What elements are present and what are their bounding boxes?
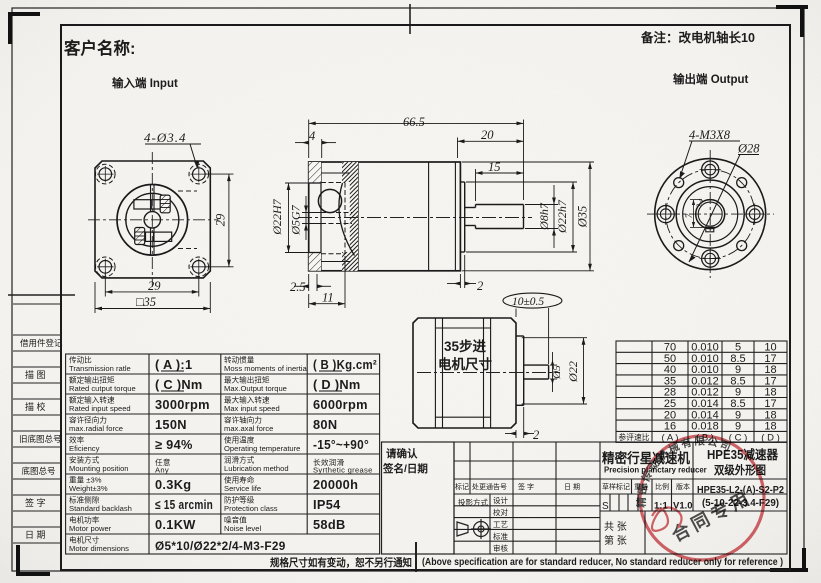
svg-text:润滑方式: 润滑方式 [224, 455, 255, 465]
svg-text:16: 16 [664, 421, 676, 433]
svg-text:Rated cutput torque: Rated cutput torque [69, 384, 136, 393]
svg-text:28: 28 [664, 387, 676, 399]
svg-text:20000h: 20000h [313, 477, 358, 492]
svg-text:Ø5: Ø5 [551, 365, 563, 380]
svg-text:旧底图总号: 旧底图总号 [19, 434, 62, 444]
svg-text:IP54: IP54 [313, 497, 341, 512]
svg-text:max.radial force: max.radial force [69, 424, 123, 433]
svg-text:8.5: 8.5 [730, 353, 745, 365]
svg-text:Eficiency: Eficiency [69, 444, 100, 453]
svg-text:Ø5*10/Ø22*2/4-M3-F29: Ø5*10/Ø22*2/4-M3-F29 [155, 539, 286, 553]
svg-text:比例: 比例 [655, 482, 669, 491]
svg-text:Max input speed: Max input speed [224, 404, 280, 413]
svg-text:0.012: 0.012 [691, 387, 719, 399]
svg-text:66.5: 66.5 [403, 115, 425, 129]
svg-text:电机尺寸: 电机尺寸 [69, 535, 100, 545]
svg-text:投影方式: 投影方式 [458, 497, 488, 507]
svg-text:Ø28: Ø28 [737, 142, 760, 156]
svg-text:描 图: 描 图 [25, 369, 46, 380]
svg-text:Syrthetic grease: Syrthetic grease [313, 466, 373, 475]
svg-text:传动比: 传动比 [69, 355, 92, 365]
svg-text:日 期: 日 期 [25, 530, 46, 540]
svg-text:客户名称:: 客户名称: [63, 38, 136, 58]
svg-text:0.3Kg: 0.3Kg [155, 477, 191, 492]
svg-text:防护等级: 防护等级 [224, 495, 255, 505]
svg-text:17: 17 [764, 353, 776, 365]
svg-text:20: 20 [664, 409, 676, 421]
svg-text:设计: 设计 [493, 495, 508, 505]
svg-text:9: 9 [735, 409, 741, 421]
svg-text:0.010: 0.010 [691, 353, 719, 365]
svg-text:25: 25 [664, 398, 676, 410]
svg-text:效率: 效率 [69, 435, 85, 445]
svg-text:参评速比: 参评速比 [618, 432, 649, 442]
svg-text:0.014: 0.014 [691, 398, 719, 410]
svg-text:额定输出扭矩: 额定输出扭矩 [69, 375, 115, 385]
svg-text:Lubrication method: Lubrication method [224, 464, 289, 473]
svg-text:请确认: 请确认 [386, 447, 418, 460]
svg-text:Moss moments of inertia: Moss moments of inertia [224, 364, 307, 373]
svg-text:18: 18 [764, 387, 776, 399]
svg-text:17: 17 [764, 375, 776, 387]
svg-text:9: 9 [735, 421, 741, 433]
svg-text:描 校: 描 校 [25, 401, 46, 412]
svg-text:4: 4 [309, 129, 315, 143]
svg-text:( B )Kg.cm²: ( B )Kg.cm² [313, 357, 377, 372]
svg-text:0.012: 0.012 [691, 375, 719, 387]
svg-text:Protection class: Protection class [224, 504, 278, 513]
svg-text:额定输入转速: 额定输入转速 [69, 395, 115, 405]
svg-text:工艺: 工艺 [493, 520, 508, 529]
svg-text:40: 40 [664, 364, 676, 376]
svg-text:底图总号: 底图总号 [22, 466, 56, 476]
svg-text:Mounting position: Mounting position [69, 464, 129, 473]
svg-text:20: 20 [481, 128, 494, 142]
svg-text:(Above specification are for s: (Above specification are for standard re… [422, 557, 783, 568]
svg-text:输出端 Output: 输出端 Output [673, 72, 749, 86]
svg-text:容许轴向力: 容许轴向力 [224, 415, 262, 425]
svg-text:日 期: 日 期 [564, 483, 580, 491]
svg-text:9: 9 [735, 387, 741, 399]
svg-text:≤ 15 arcmin: ≤ 15 arcmin [155, 497, 213, 512]
svg-text:Ø5G7: Ø5G7 [289, 204, 303, 235]
svg-text:Transmission ratle: Transmission ratle [69, 364, 131, 373]
svg-text:Motor power: Motor power [69, 524, 112, 533]
svg-text:校对: 校对 [493, 507, 508, 517]
svg-text:借用件登记: 借用件登记 [20, 338, 63, 348]
svg-text:输入端 Input: 输入端 Input [112, 76, 178, 90]
svg-text:35步进: 35步进 [444, 338, 487, 354]
svg-text:18: 18 [764, 421, 776, 433]
svg-text:Operating temperature: Operating temperature [224, 444, 300, 453]
svg-text:9: 9 [735, 364, 741, 376]
svg-text:第 张: 第 张 [604, 534, 627, 547]
svg-text:Any: Any [155, 466, 169, 475]
svg-text:35: 35 [664, 375, 676, 387]
svg-text:( D )Nm: ( D )Nm [313, 377, 361, 392]
svg-text:80N: 80N [313, 417, 337, 432]
svg-text:6000rpm: 6000rpm [313, 397, 368, 412]
svg-text:17: 17 [764, 398, 776, 410]
svg-text:29: 29 [214, 213, 228, 226]
svg-text:标准侧隙: 标准侧隙 [69, 495, 100, 505]
svg-text:8.5: 8.5 [730, 398, 745, 410]
svg-text:58dB: 58dB [313, 517, 346, 532]
svg-text:转动惯量: 转动惯量 [224, 355, 255, 365]
svg-text:Ø22H7: Ø22H7 [270, 198, 284, 235]
svg-text:版本: 版本 [676, 482, 690, 491]
svg-text:Motor dimensions: Motor dimensions [69, 544, 129, 553]
svg-text:使用寿命: 使用寿命 [224, 475, 255, 485]
svg-text:( C )Nm: ( C )Nm [155, 377, 203, 392]
svg-text:备注：改电机轴长10: 备注：改电机轴长10 [640, 30, 755, 45]
svg-text:Ø8h7: Ø8h7 [537, 202, 551, 231]
svg-text:( A ):1: ( A ):1 [155, 357, 192, 372]
svg-text:18: 18 [764, 409, 776, 421]
svg-text:≥ 94%: ≥ 94% [155, 437, 193, 452]
svg-text:电机功率: 电机功率 [69, 515, 100, 525]
svg-text:处更通告号: 处更通告号 [472, 482, 507, 491]
svg-text:8.5: 8.5 [730, 375, 745, 387]
svg-text:安装方式: 安装方式 [69, 455, 100, 465]
svg-text:Noise level: Noise level [224, 524, 261, 533]
svg-text:草样标记: 草样标记 [602, 482, 630, 491]
svg-text:Service life: Service life [224, 484, 261, 493]
svg-text:2: 2 [533, 428, 539, 442]
svg-text:29: 29 [148, 279, 161, 293]
svg-text:-15°~+90°: -15°~+90° [313, 437, 369, 452]
svg-text:10: 10 [764, 342, 776, 354]
svg-text:共 张: 共 张 [604, 521, 627, 533]
svg-text:4-M3X8: 4-M3X8 [689, 128, 731, 142]
svg-text:4-Ø3.4: 4-Ø3.4 [144, 130, 186, 145]
svg-text:审核: 审核 [493, 543, 508, 553]
svg-text:0.010: 0.010 [691, 364, 719, 376]
svg-text:Rated input speed: Rated input speed [69, 404, 131, 413]
svg-text:电机尺寸: 电机尺寸 [438, 356, 492, 372]
svg-text:7: 7 [684, 213, 694, 218]
svg-text:18: 18 [764, 364, 776, 376]
svg-text:0.1KW: 0.1KW [155, 517, 196, 532]
svg-text:Ø35: Ø35 [576, 206, 590, 229]
svg-text:最大输出扭矩: 最大输出扭矩 [224, 375, 270, 385]
svg-text:噪音值: 噪音值 [224, 515, 247, 525]
svg-text:50: 50 [664, 353, 676, 365]
svg-text:使用温度: 使用温度 [224, 435, 255, 445]
svg-text:0.014: 0.014 [691, 409, 719, 421]
svg-text:签名/日期: 签名/日期 [382, 462, 428, 475]
svg-text:Weight±3%: Weight±3% [69, 484, 108, 493]
svg-text:0.018: 0.018 [691, 421, 719, 433]
svg-text:150N: 150N [155, 417, 187, 432]
svg-text:标准: 标准 [493, 531, 508, 541]
svg-text:70: 70 [664, 342, 676, 354]
svg-text:5: 5 [735, 342, 741, 354]
svg-text:签 字: 签 字 [518, 482, 534, 491]
svg-text:0.010: 0.010 [691, 342, 719, 354]
svg-text:S: S [602, 501, 609, 512]
svg-text:Standard backlash: Standard backlash [69, 504, 132, 513]
svg-text:规格尺寸如有变动，恕不另行通知: 规格尺寸如有变动，恕不另行通知 [270, 556, 412, 569]
svg-text:10±0.5: 10±0.5 [512, 296, 544, 308]
svg-text:3000rpm: 3000rpm [155, 397, 210, 412]
svg-text:2: 2 [477, 279, 483, 293]
svg-text:容许径向力: 容许径向力 [69, 415, 107, 425]
svg-text:Max.Output torque: Max.Output torque [224, 384, 287, 393]
svg-text:max.axal force: max.axal force [224, 424, 273, 433]
svg-text:最大输入转速: 最大输入转速 [224, 395, 270, 405]
svg-text:签 字: 签 字 [25, 497, 46, 508]
svg-text:2.5: 2.5 [290, 280, 306, 294]
svg-text:标记: 标记 [455, 482, 469, 491]
svg-text:Ø22: Ø22 [566, 361, 580, 383]
svg-text:□35: □35 [136, 295, 156, 309]
svg-text:11: 11 [322, 291, 334, 305]
